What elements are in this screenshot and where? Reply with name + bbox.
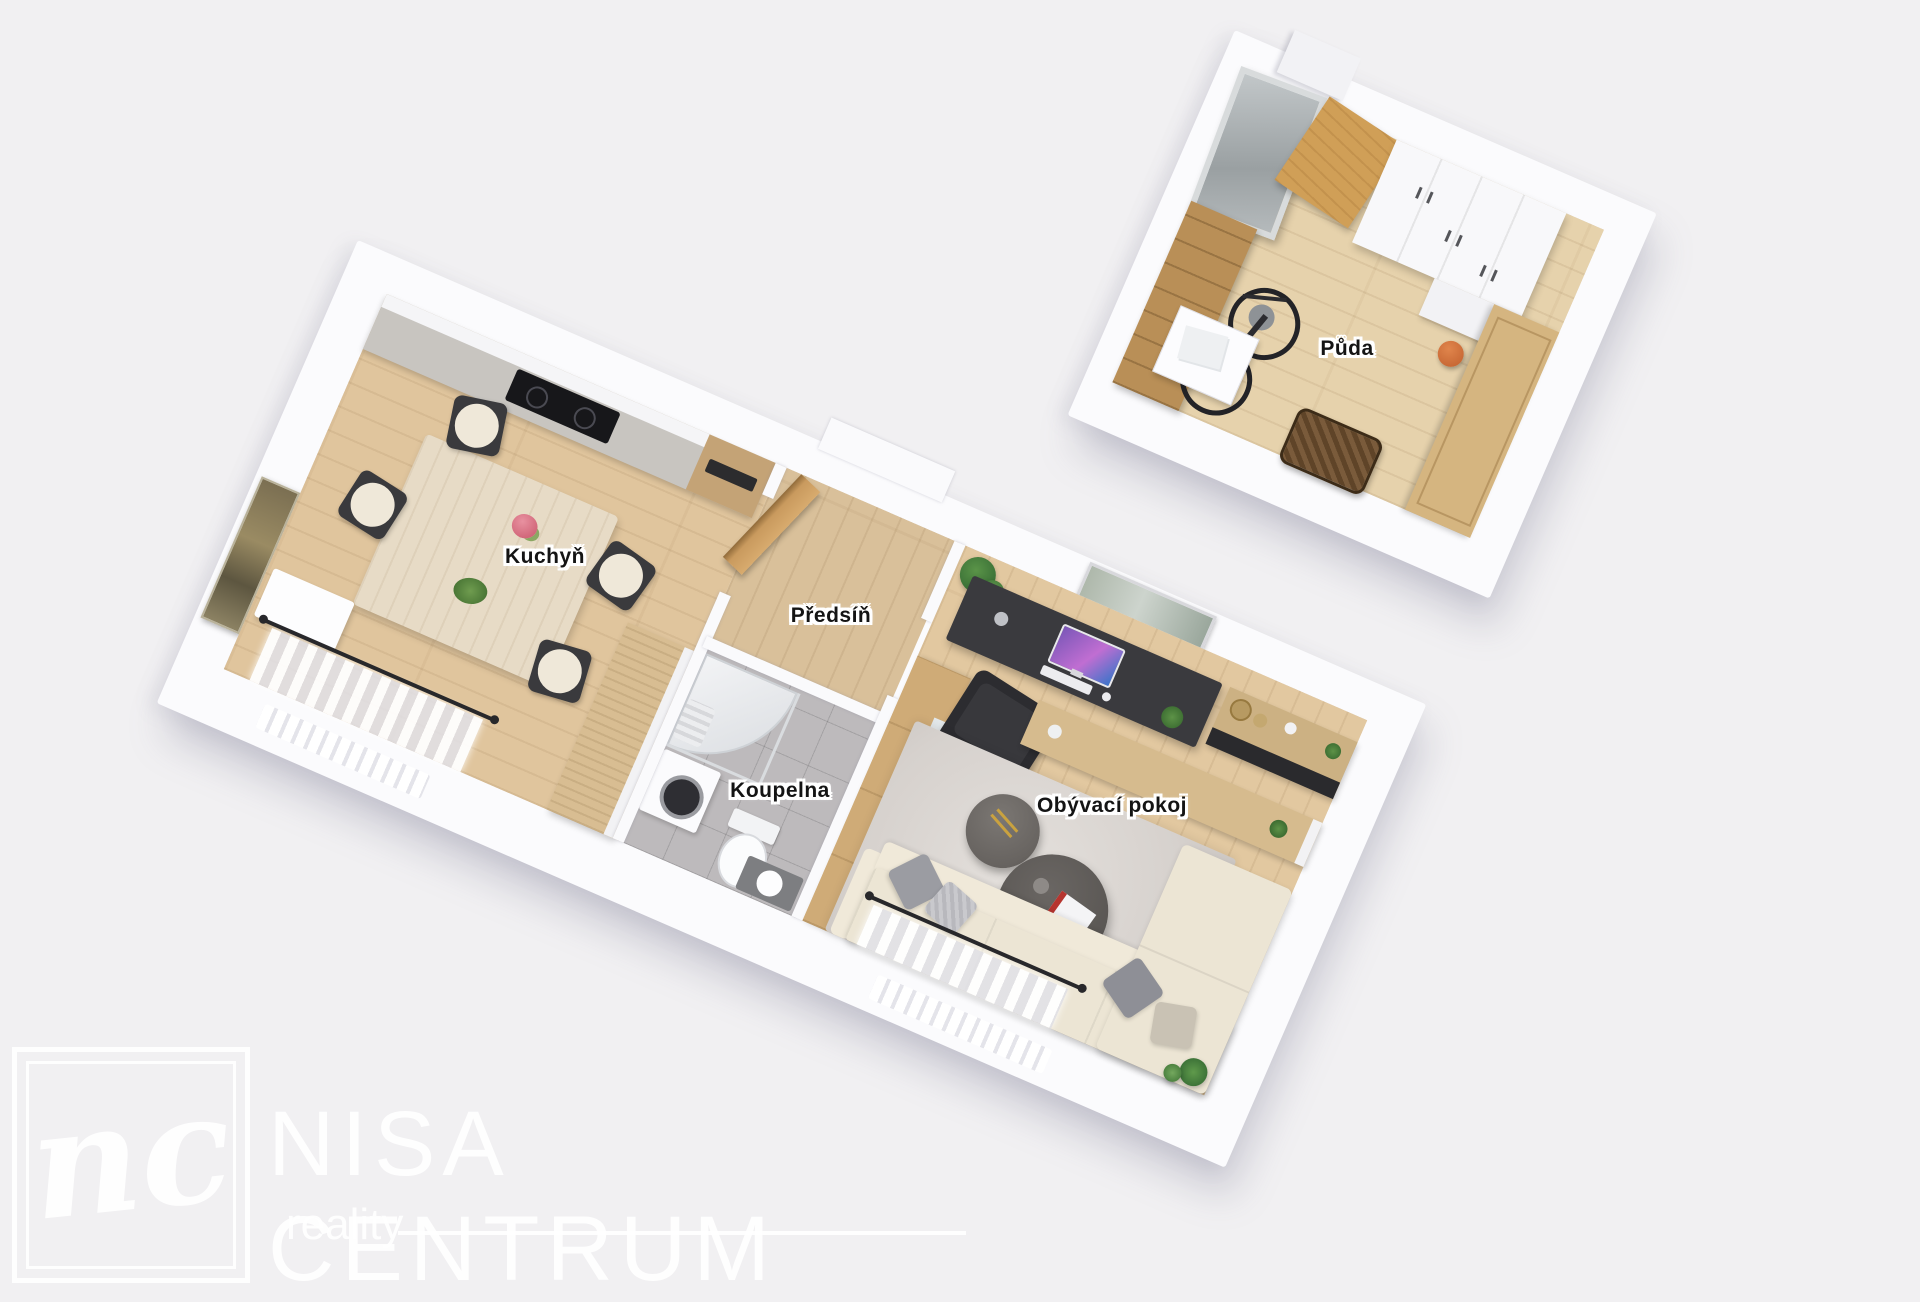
watermark-brand-text: NISA CENTRUM [268,1092,777,1302]
cooktop-burner [570,404,599,433]
attic-floor [1125,80,1604,538]
watermark-tagline-text: reality [286,1200,403,1250]
room-label-attic: Půda [1320,337,1373,361]
room-label-hallway: Předsíň [791,604,872,628]
table-decor-sticks [996,808,1018,832]
sofa-pillow [1149,1001,1197,1049]
console-decor [1046,722,1064,740]
floorplan-canvas: Kuchyň Předsíň Koupelna Obývací pokoj Pů… [0,0,1920,1280]
mouse [1100,691,1112,703]
papers [1177,325,1228,370]
desk-cup [992,610,1010,628]
bathroom-sink [752,866,786,900]
wardrobe-handle [1444,230,1452,242]
desk-plant [1158,703,1187,732]
coffee-table-bowl [1031,875,1052,896]
room-label-kitchen: Kuchyň [505,545,585,569]
decor-vase [1283,720,1299,736]
chair-seat [451,400,503,452]
watermark-underline [398,1231,966,1235]
room-label-bathroom: Koupelna [730,779,830,803]
room-label-living-room: Obývací pokoj [1037,794,1187,818]
oven-door [704,459,757,493]
dining-chair [445,394,509,458]
console-plant [1267,817,1291,841]
decor-basket [1251,711,1269,729]
decor-basket [1226,696,1255,725]
decor-plant [1323,741,1344,762]
wardrobe-handle [1415,187,1423,199]
chair-seat [532,644,587,699]
attic-unit [1068,30,1657,599]
console-end [1294,819,1322,867]
washer-door [653,768,711,826]
watermark-monogram: nc [8,1051,255,1264]
watermark-logo-box: nc [12,1047,250,1283]
wardrobe-handle [1479,265,1487,277]
cooktop-burner [523,383,552,412]
